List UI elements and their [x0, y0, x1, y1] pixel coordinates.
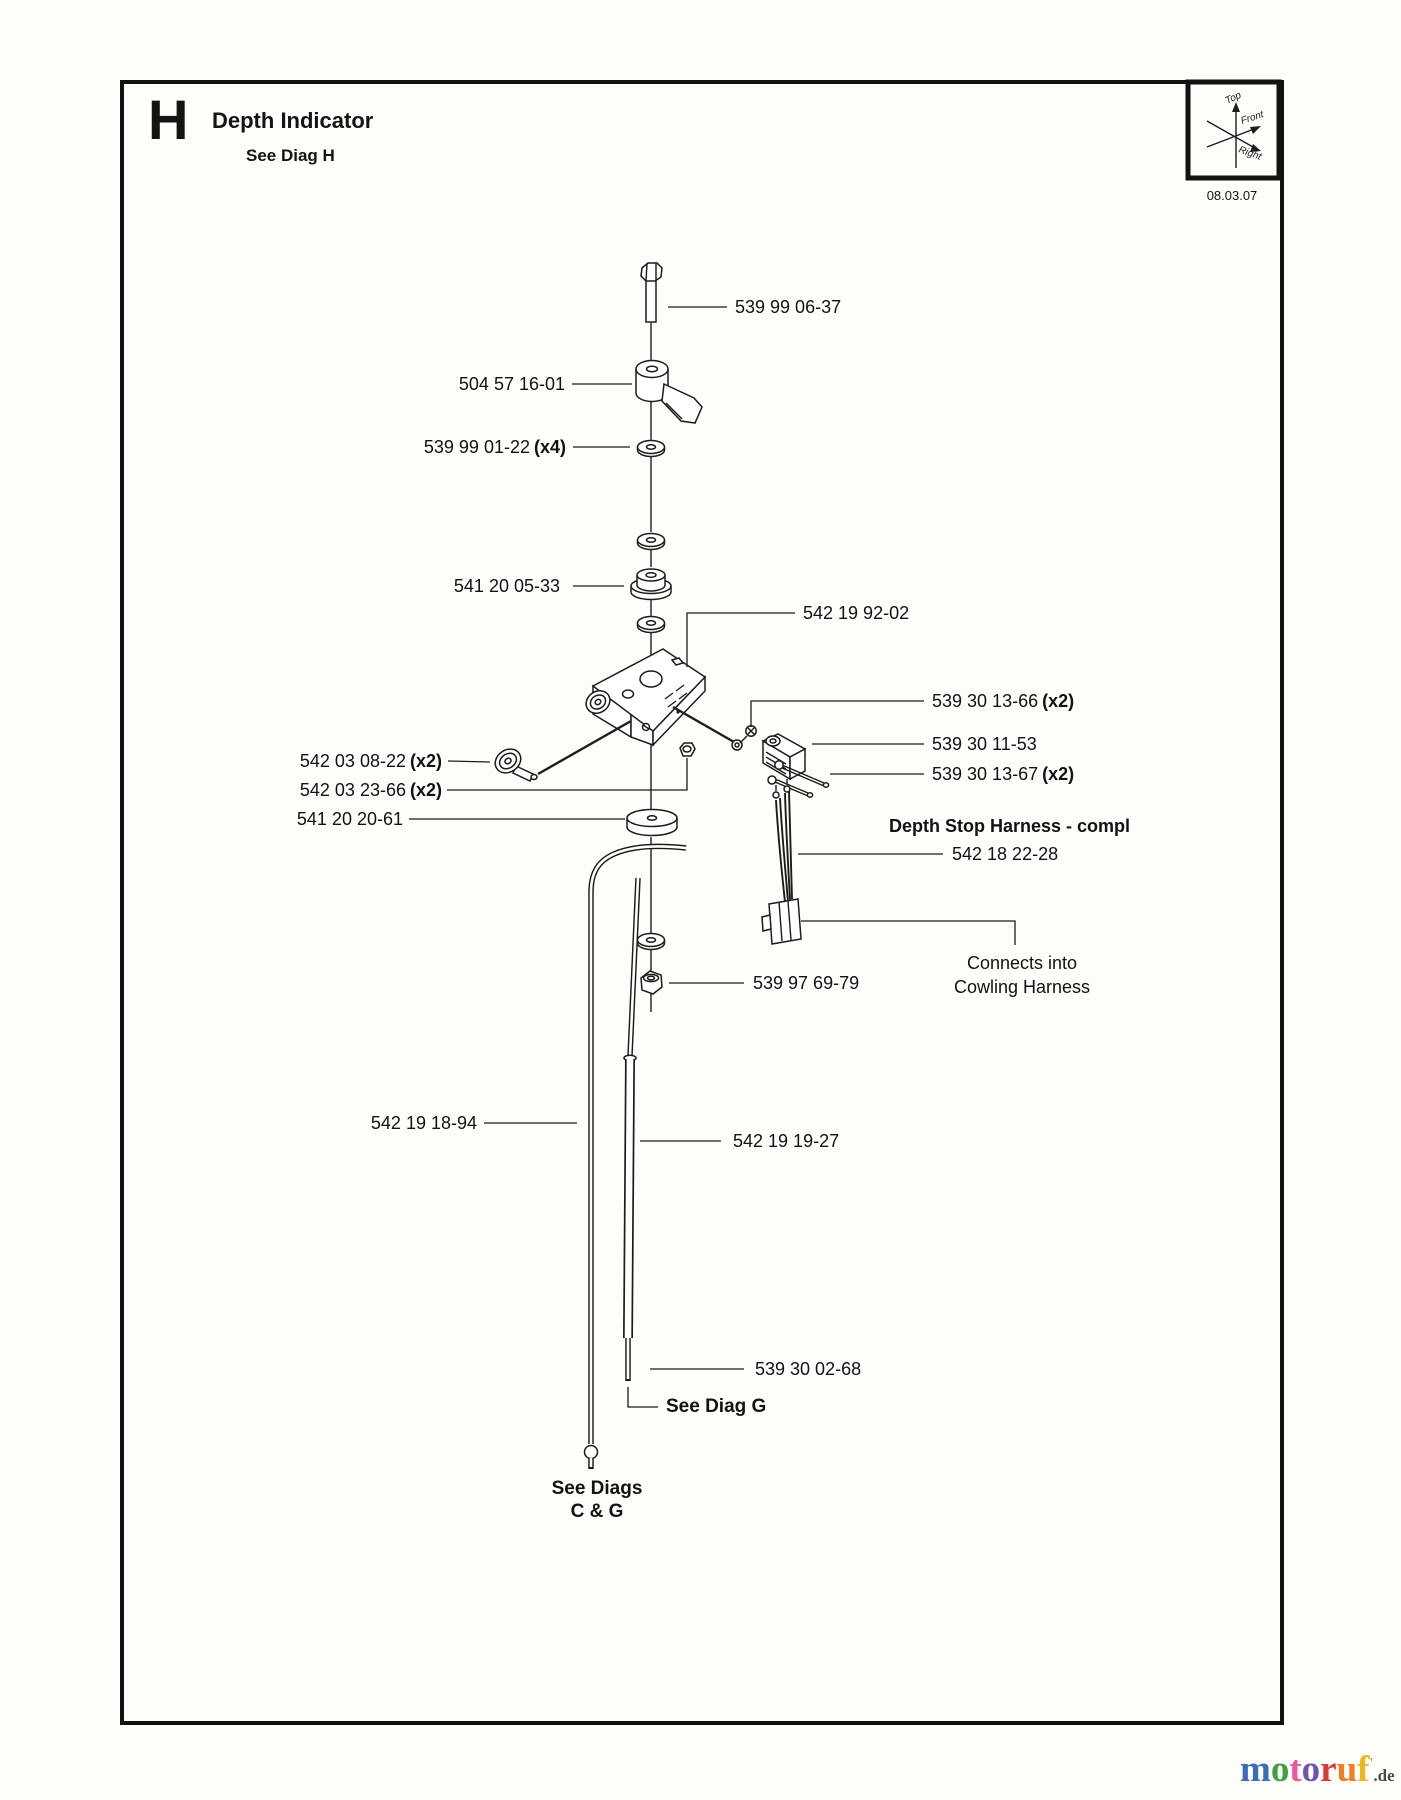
- leader-roller: [448, 761, 490, 762]
- label-text: Depth Stop Harness - compl: [889, 816, 1130, 836]
- part-label-rod: 542 19 19-27: [733, 1130, 839, 1152]
- part-number: 539 30 11-53: [932, 734, 1037, 754]
- part-number: 541 20 05-33: [454, 576, 560, 596]
- harness-drawing: [762, 779, 801, 944]
- part-label-harness: 542 18 22-28: [952, 843, 1058, 865]
- part-number: 539 99 01-22: [424, 437, 530, 457]
- part-label-bolt: 539 99 06-37: [735, 296, 841, 318]
- part-qty: (x2): [1042, 691, 1074, 711]
- connects-note: Connects into Cowling Harness: [938, 951, 1106, 999]
- note-line: C & G: [538, 1500, 656, 1523]
- part-label-cable: 542 19 18-94: [371, 1112, 477, 1134]
- part-number: 539 30 13-67: [932, 764, 1038, 784]
- watermark-word: motoruf: [1240, 1749, 1370, 1790]
- washer-upper-drawing: [638, 441, 665, 457]
- part-label-washer: 539 99 01-22(x4): [424, 436, 566, 458]
- catalog-page: H Depth Indicator See Diag H 08.03.07 To…: [0, 0, 1401, 1800]
- switch-fasteners-drawing: [673, 707, 756, 756]
- part-qty: (x2): [1042, 764, 1074, 784]
- leader-see-diag-g: [628, 1387, 658, 1407]
- part-qty: (x2): [410, 780, 442, 800]
- leader-bracket: [687, 613, 795, 667]
- part-number: 541 20 20-61: [297, 809, 403, 829]
- part-number: 539 99 06-37: [735, 297, 841, 317]
- part-number: 542 19 18-94: [371, 1113, 477, 1133]
- part-label-screw-lower: 539 30 13-67(x2): [932, 763, 1074, 785]
- note-line: Cowling Harness: [938, 975, 1106, 999]
- part-label-rod-tip: 539 30 02-68: [755, 1358, 861, 1380]
- washer-middle-drawing: [638, 534, 665, 550]
- lever-drawing: [636, 361, 702, 424]
- part-qty: (x2): [410, 751, 442, 771]
- part-qty: (x4): [534, 437, 566, 457]
- part-label-lever: 504 57 16-01: [459, 373, 565, 395]
- part-label-switch: 539 30 11-53: [932, 733, 1037, 755]
- watermark-letter: o: [1302, 1749, 1321, 1790]
- watermark-letter: u: [1337, 1749, 1358, 1790]
- note-line: Connects into: [938, 951, 1106, 975]
- leader-screw-upper: [751, 701, 924, 727]
- part-number: 542 19 92-02: [803, 603, 909, 623]
- disc-drawing: [627, 810, 677, 836]
- spacer-drawing: [631, 569, 671, 599]
- see-diag-g-note: See Diag G: [666, 1396, 766, 1418]
- part-label-spacer: 541 20 05-33: [454, 575, 560, 597]
- note-line: See Diags: [538, 1477, 656, 1500]
- bolt-drawing: [641, 263, 662, 322]
- part-number: 542 03 23-66: [300, 780, 406, 800]
- watermark-letter: o: [1271, 1749, 1290, 1790]
- part-number: 542 18 22-28: [952, 844, 1058, 864]
- rod-tube-drawing: [624, 878, 638, 1381]
- leader-lines: [409, 307, 1015, 1407]
- roller-axle-drawing: [491, 721, 631, 781]
- part-label-bracket: 542 19 92-02: [803, 602, 909, 624]
- part-label-nut-small: 542 03 23-66(x2): [300, 779, 442, 801]
- orientation-axes-icon: Top Front Right: [1188, 82, 1279, 178]
- watermark-letter: r: [1320, 1749, 1336, 1790]
- part-label-disc: 541 20 20-61: [297, 808, 403, 830]
- watermark-letter: f: [1357, 1749, 1369, 1790]
- part-label-screw-upper: 539 30 13-66(x2): [932, 690, 1074, 712]
- leader-connects-note: [801, 921, 1015, 945]
- note-text: See Diag G: [666, 1396, 766, 1417]
- see-diags-note: See Diags C & G: [538, 1477, 656, 1523]
- part-number: 539 30 13-66: [932, 691, 1038, 711]
- part-number: 542 19 19-27: [733, 1131, 839, 1151]
- part-number: 539 97 69-79: [753, 973, 859, 993]
- exploded-parts-diagram: Top Front Right: [0, 0, 1401, 1800]
- watermark-letter: m: [1240, 1749, 1271, 1790]
- watermark-logo: motoruf'.de: [1240, 1748, 1395, 1791]
- part-number: 539 30 02-68: [755, 1359, 861, 1379]
- part-number: 504 57 16-01: [459, 374, 565, 394]
- washer-lower-drawing: [638, 617, 665, 633]
- part-label-nut-lower: 539 97 69-79: [753, 972, 859, 994]
- harness-title: Depth Stop Harness - compl: [889, 815, 1130, 837]
- watermark-letter: t: [1289, 1749, 1301, 1790]
- watermark-domain: .de: [1373, 1766, 1394, 1785]
- part-label-roller: 542 03 08-22(x2): [300, 750, 442, 772]
- part-number: 542 03 08-22: [300, 751, 406, 771]
